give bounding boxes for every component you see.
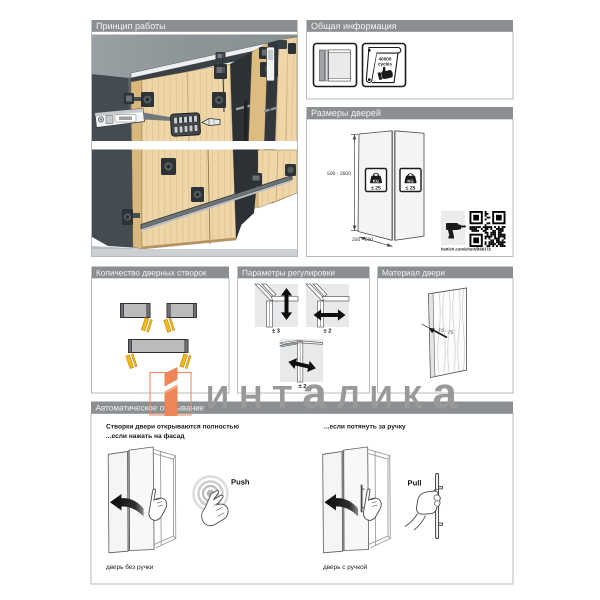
svg-text:≤ 25: ≤ 25 [371,186,381,192]
svg-text:Створки двери открываются полн: Створки двери открываются полностью [106,424,239,431]
svg-text:≤ 25: ≤ 25 [406,186,416,192]
svg-text:Общая информация: Общая информация [311,21,397,31]
svg-text:500 - 2600: 500 - 2600 [327,171,351,177]
svg-text:KG: KG [407,179,413,184]
svg-text:± 2: ± 2 [323,328,331,335]
svg-text:Материал двери: Материал двери [382,269,445,278]
svg-text:...если нажать на фасад: ...если нажать на фасад [106,433,185,440]
svg-text:KG: KG [373,179,379,184]
svg-text:Push: Push [231,478,250,487]
svg-text:Принцип работы: Принцип работы [96,21,166,31]
svg-text:Количество дверных створок: Количество дверных створок [96,269,207,278]
svg-text:Параметры регулировки: Параметры регулировки [242,269,335,278]
svg-text:...если потянуть за ручку: ...если потянуть за ручку [324,424,406,431]
svg-text:дверь с ручкой: дверь с ручкой [323,564,368,571]
svg-text:± 3: ± 3 [272,328,281,335]
svg-text:hettich.com/short/B66172: hettich.com/short/B66172 [441,247,492,252]
svg-text:Размеры дверей: Размеры дверей [311,108,381,118]
svg-text:250 - 600: 250 - 600 [352,237,373,243]
svg-text:cycles: cycles [378,62,392,67]
svg-text:дверь без ручки: дверь без ручки [106,564,154,571]
svg-text:Pull: Pull [408,479,422,488]
